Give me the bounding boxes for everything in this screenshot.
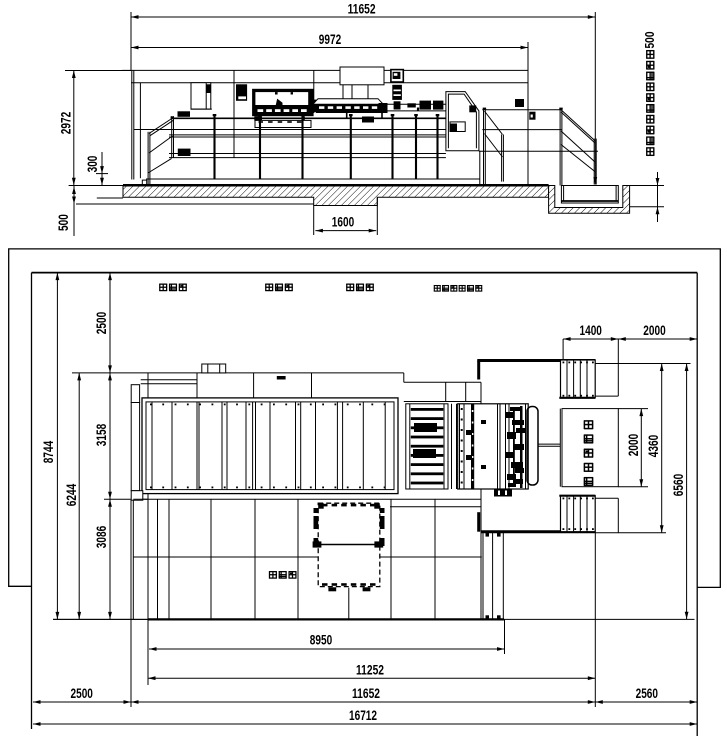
svg-text:2000: 2000 [643,322,666,338]
svg-text:4360: 4360 [645,435,661,458]
svg-text:2000: 2000 [625,434,641,457]
svg-text:8744: 8744 [40,441,56,464]
svg-text:2500: 2500 [71,685,94,701]
svg-text:1600: 1600 [332,214,355,230]
svg-text:3158: 3158 [93,424,109,447]
svg-text:2500: 2500 [93,312,109,335]
svg-text:2560: 2560 [636,685,659,701]
svg-text:16712: 16712 [349,707,377,723]
svg-text:3086: 3086 [93,526,109,549]
svg-text:9972: 9972 [319,31,342,47]
svg-text:2972: 2972 [57,112,73,135]
svg-text:6244: 6244 [63,484,79,507]
svg-text:11252: 11252 [356,662,384,678]
svg-text:11652: 11652 [348,1,376,17]
svg-text:6560: 6560 [670,474,686,497]
svg-text:500: 500 [643,31,657,48]
svg-text:500: 500 [55,214,71,231]
svg-text:8950: 8950 [310,632,333,648]
svg-text:11652: 11652 [352,685,380,701]
svg-text:300: 300 [84,155,100,172]
svg-text:1400: 1400 [580,322,603,338]
